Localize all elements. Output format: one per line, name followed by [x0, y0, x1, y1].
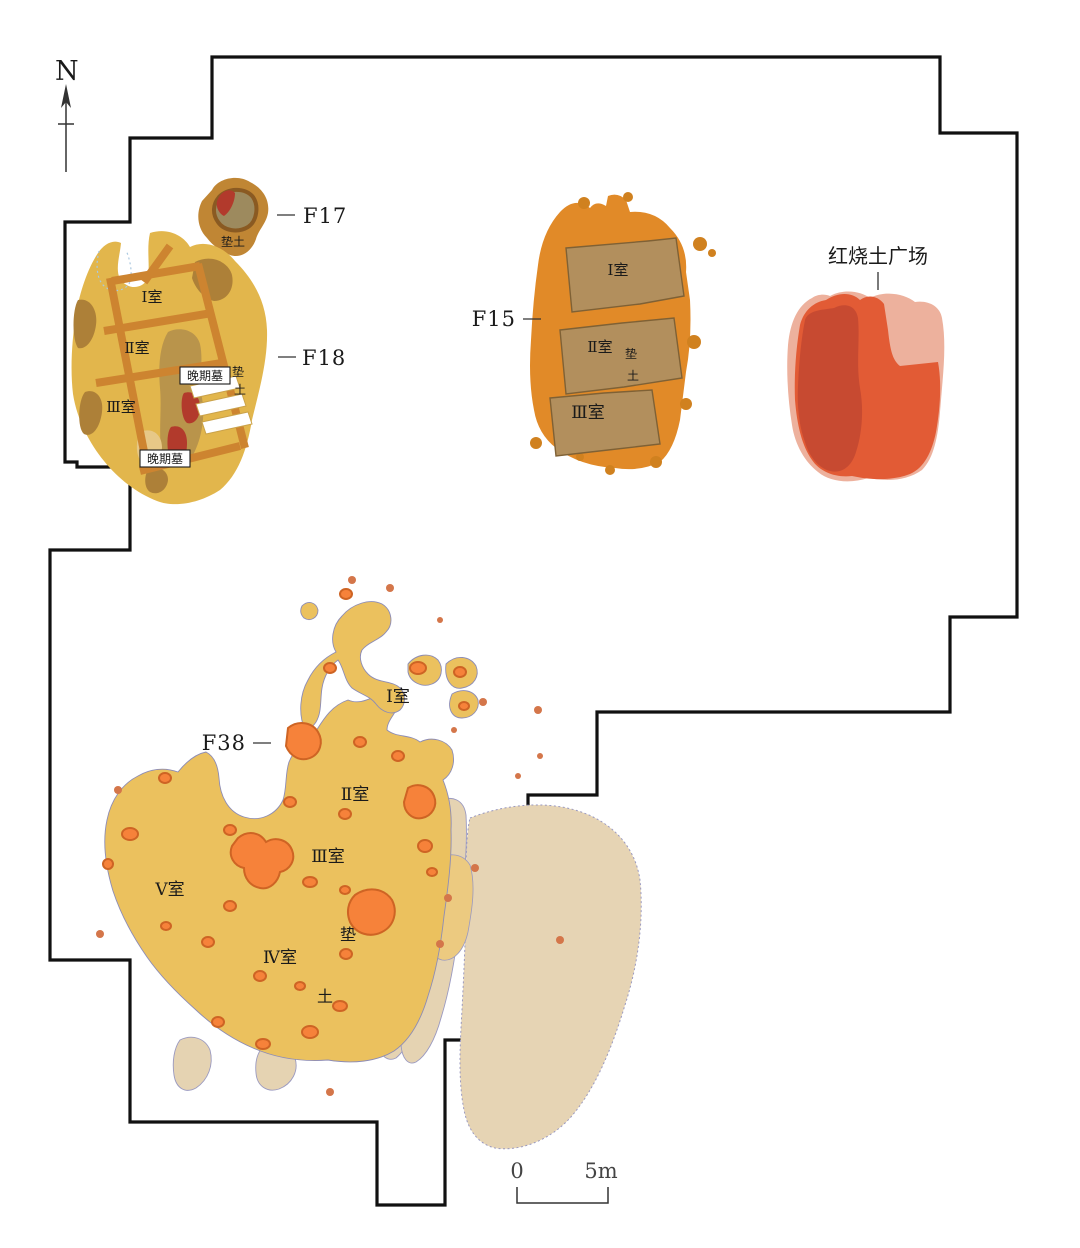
scale-start-label: 0 — [510, 1159, 523, 1183]
f15-room-3-label: Ⅲ室 — [571, 403, 604, 423]
feature-f15: Ⅰ室 Ⅱ室 Ⅲ室 垫 土 F15 — [472, 192, 716, 475]
f38-room-4-label: Ⅳ室 — [263, 948, 297, 968]
f38-label: F38 — [202, 731, 246, 755]
f38-room-5-label: Ⅴ室 — [154, 880, 184, 900]
feature-f17: 垫土 F17 — [198, 178, 347, 256]
f18-label: F18 — [302, 346, 346, 370]
f15-room-2-label: Ⅱ室 — [587, 338, 612, 356]
north-label: N — [55, 56, 79, 87]
f18-late-tomb-label-box-2: 晚期墓 — [140, 450, 190, 467]
f18-fill-char-1: 垫 — [232, 364, 244, 379]
f18-room-2-label: Ⅱ室 — [124, 339, 149, 357]
f17-label: F17 — [303, 204, 347, 228]
site-plan-canvas: N 垫土 F17 — [0, 0, 1080, 1248]
feature-f38: Ⅰ室 Ⅱ室 Ⅲ室 Ⅳ室 Ⅴ室 垫 土 F38 — [96, 576, 641, 1149]
f15-room-3-floor — [550, 390, 660, 456]
scale-end-label: 5m — [584, 1159, 617, 1183]
f38-fill-char-2: 土 — [317, 987, 333, 1006]
feature-f18: 晚期墓 晚期墓 Ⅰ室 Ⅱ室 Ⅲ室 垫 土 F18 — [72, 231, 347, 504]
f18-fill-char-2: 土 — [234, 383, 246, 397]
f38-room-1-label: Ⅰ室 — [386, 687, 410, 707]
f15-fill-char-2: 土 — [627, 369, 639, 383]
f17-fill-label: 垫土 — [221, 234, 245, 249]
f38-fill-char-1: 垫 — [340, 925, 356, 944]
north-arrow: N — [55, 56, 79, 172]
f38-burnt-patch — [404, 785, 435, 818]
scale-bar-bracket — [517, 1187, 608, 1203]
f38-beige-bottom-patch-1 — [173, 1037, 211, 1090]
f15-room-1-label: Ⅰ室 — [608, 261, 629, 279]
f18-room-3-label: Ⅲ室 — [106, 398, 135, 416]
late-tomb-label: 晚期墓 — [187, 369, 223, 383]
unexcavated-deposit-area — [460, 805, 641, 1149]
burnt-earth-plaza: 红烧土广场 — [787, 244, 944, 481]
plaza-label: 红烧土广场 — [828, 244, 928, 268]
scale-bar: 0 5m — [510, 1159, 617, 1203]
f18-late-tomb-label-box-1: 晚期墓 — [180, 367, 230, 384]
plaza-inner-dark-red — [798, 305, 862, 471]
site-plan-figure: N 垫土 F17 — [0, 0, 1080, 1248]
f15-fill-char-1: 垫 — [625, 346, 637, 361]
f18-room-1-label: Ⅰ室 — [142, 288, 163, 306]
f38-islet — [301, 603, 318, 620]
f38-burnt-patch — [286, 723, 321, 759]
f15-label: F15 — [472, 307, 516, 331]
f38-room-2-label: Ⅱ室 — [341, 785, 370, 805]
late-tomb-label: 晚期墓 — [147, 452, 183, 466]
f38-room-3-label: Ⅲ室 — [311, 847, 344, 867]
